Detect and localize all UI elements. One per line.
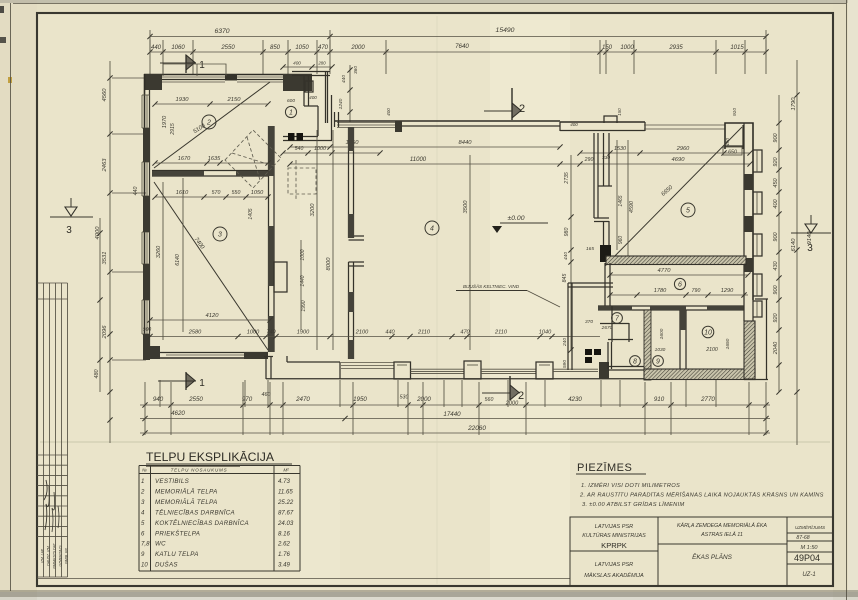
svg-text:1990: 1990 (301, 300, 307, 311)
svg-text:360: 360 (353, 66, 359, 74)
svg-text:790: 790 (692, 288, 701, 294)
svg-text:900: 900 (773, 231, 779, 241)
svg-text:2960: 2960 (676, 146, 690, 152)
svg-text:400: 400 (386, 108, 391, 116)
svg-text:2735: 2735 (564, 172, 570, 185)
svg-text:MEMORIĀLĀ TELPA: MEMORIĀLĀ TELPA (155, 499, 218, 506)
svg-text:3: 3 (218, 231, 222, 238)
svg-text:PARAKSTS DAT: PARAKSTS DAT (53, 542, 57, 568)
svg-text:980: 980 (564, 228, 570, 237)
svg-text:1: 1 (199, 60, 205, 71)
svg-text:3.49: 3.49 (278, 562, 290, 569)
svg-text:1950: 1950 (353, 396, 367, 403)
svg-text:920: 920 (773, 156, 779, 166)
svg-text:480: 480 (94, 370, 100, 379)
svg-text:PARB. KR: PARB. KR (65, 548, 69, 564)
svg-text:UZ-1: UZ-1 (802, 572, 815, 578)
svg-text:1060: 1060 (171, 45, 185, 51)
svg-text:1405: 1405 (248, 208, 254, 219)
svg-text:1050: 1050 (251, 190, 264, 196)
svg-text:1635: 1635 (208, 156, 221, 162)
svg-text:280: 280 (317, 61, 326, 66)
svg-text:8: 8 (633, 358, 637, 365)
svg-text:TELPU NOSAUKUMS: TELPU NOSAUKUMS (171, 468, 228, 473)
svg-text:400: 400 (309, 95, 317, 100)
svg-text:№: № (142, 468, 147, 473)
svg-text:1050: 1050 (295, 45, 309, 51)
svg-text:440: 440 (133, 187, 139, 196)
svg-text:KOKTĒLNIECĪBAS DARBNĪCA: KOKTĒLNIECĪBAS DARBNĪCA (155, 520, 249, 527)
svg-text:8000: 8000 (326, 257, 332, 271)
svg-text:550: 550 (232, 190, 241, 196)
svg-text:460: 460 (262, 392, 271, 398)
svg-text:1790: 1790 (791, 97, 797, 111)
svg-text:2100: 2100 (355, 330, 369, 336)
svg-text:KATLU TELPA: KATLU TELPA (155, 551, 199, 558)
svg-text:9: 9 (656, 358, 660, 365)
svg-text:2150: 2150 (227, 97, 242, 103)
svg-text:570: 570 (212, 190, 221, 196)
svg-text:11.65: 11.65 (278, 488, 293, 495)
svg-text:2580: 2580 (188, 330, 202, 336)
svg-text:2096: 2096 (102, 325, 108, 340)
svg-text:910: 910 (732, 108, 738, 116)
svg-text:1015: 1015 (730, 45, 744, 51)
svg-text:1610: 1610 (176, 190, 189, 196)
svg-text:1.76: 1.76 (278, 551, 290, 558)
svg-text:1670: 1670 (178, 156, 191, 162)
svg-text:2550: 2550 (220, 45, 235, 51)
svg-text:1780: 1780 (654, 288, 667, 294)
svg-text:4560: 4560 (102, 88, 108, 102)
svg-text:470: 470 (460, 330, 470, 336)
svg-text:6370: 6370 (214, 28, 229, 35)
svg-text:3. ±0.00 ATBILST GRĪDAS LĪMENI: 3. ±0.00 ATBILST GRĪDAS LĪMENIM (582, 501, 685, 508)
svg-text:VESTIBILS: VESTIBILS (155, 478, 190, 485)
svg-text:TĒLNIECĪBAS DARBNĪCA: TĒLNIECĪBAS DARBNĪCA (155, 509, 235, 516)
svg-text:87.67: 87.67 (278, 509, 294, 516)
svg-text:4.73: 4.73 (278, 478, 290, 485)
svg-text:2110: 2110 (494, 330, 508, 336)
svg-text:DUŠAS: DUŠAS (155, 562, 178, 569)
svg-text:5: 5 (686, 207, 690, 214)
svg-text:650: 650 (728, 150, 737, 156)
svg-text:3531: 3531 (102, 252, 108, 265)
svg-text:440: 440 (341, 75, 347, 83)
svg-text:1970: 1970 (162, 115, 168, 128)
svg-text:2770: 2770 (700, 396, 715, 403)
svg-text:MĀKSLAS AKADĒMIJA: MĀKSLAS AKADĒMIJA (584, 572, 644, 579)
svg-text:560: 560 (485, 397, 494, 403)
svg-text:49P04: 49P04 (794, 553, 820, 563)
svg-text:7640: 7640 (455, 43, 469, 50)
svg-text:KPRPK: KPRPK (601, 541, 627, 550)
svg-text:17440: 17440 (443, 411, 461, 418)
svg-text:740: 740 (266, 330, 276, 336)
svg-text:430: 430 (773, 260, 779, 270)
svg-text:PIEZĪMES: PIEZĪMES (577, 462, 632, 474)
svg-text:920: 920 (773, 312, 779, 322)
svg-text:400: 400 (773, 198, 779, 208)
svg-text:150: 150 (617, 108, 622, 116)
svg-text:UZMERITAJS: UZMERITAJS (59, 545, 63, 567)
svg-text:1000: 1000 (620, 45, 634, 51)
svg-text:910: 910 (654, 396, 665, 403)
svg-text:11000: 11000 (410, 157, 427, 163)
svg-text:1040: 1040 (539, 330, 552, 336)
svg-text:1: 1 (199, 378, 205, 389)
svg-text:850: 850 (270, 45, 281, 51)
svg-text:900: 900 (773, 132, 779, 142)
svg-text:440: 440 (563, 252, 569, 260)
svg-text:2470: 2470 (295, 396, 310, 403)
svg-text:4620: 4620 (171, 410, 185, 417)
svg-text:ASTRAS IELĀ 11: ASTRAS IELĀ 11 (700, 531, 743, 538)
svg-text:3260: 3260 (156, 245, 162, 258)
svg-text:MEMORIĀLĀ TELPA: MEMORIĀLĀ TELPA (155, 488, 218, 495)
svg-text:2670: 2670 (601, 325, 613, 331)
svg-text:WC: WC (155, 541, 166, 548)
svg-text:M²: M² (283, 468, 289, 473)
svg-text:22060: 22060 (467, 425, 486, 432)
svg-text:165: 165 (586, 246, 594, 252)
svg-text:KĀRĻA ZEMDEGA MEMORIĀLĀ ĒKA: KĀRĻA ZEMDEGA MEMORIĀLĀ ĒKA (677, 522, 767, 529)
svg-text:845: 845 (562, 274, 568, 283)
svg-text:2. AR RAUSTĪTU PARĀDĪTAS MĒRĪŠ: 2. AR RAUSTĪTU PARĀDĪTAS MĒRĪŠANAS LAIKĀ… (579, 492, 824, 499)
svg-text:2: 2 (140, 488, 145, 495)
svg-text:LATVIJAS PSR: LATVIJAS PSR (595, 524, 633, 530)
svg-text:4120: 4120 (206, 313, 220, 319)
svg-text:2: 2 (519, 103, 525, 115)
svg-text:600: 600 (287, 98, 295, 104)
svg-text:DAUDZ. IZM: DAUDZ. IZM (47, 546, 51, 566)
svg-text:4000: 4000 (95, 226, 101, 240)
svg-text:4770: 4770 (658, 268, 672, 274)
svg-text:900: 900 (143, 327, 152, 333)
svg-text:1030: 1030 (655, 347, 666, 353)
svg-text:960: 960 (618, 236, 624, 245)
svg-text:87-68: 87-68 (796, 535, 809, 541)
svg-text:UZMĒRĪJUMS: UZMĒRĪJUMS (795, 524, 826, 530)
svg-text:PRIEKŠTELPA: PRIEKŠTELPA (155, 530, 200, 537)
svg-text:1000: 1000 (300, 249, 306, 260)
svg-text:590: 590 (562, 360, 568, 368)
svg-text:2: 2 (518, 390, 524, 402)
svg-text:2000: 2000 (350, 45, 365, 51)
svg-text:2: 2 (206, 119, 211, 126)
svg-text:900: 900 (773, 284, 779, 294)
svg-text:240: 240 (562, 338, 568, 347)
svg-text:1: 1 (141, 478, 144, 485)
svg-text:3500: 3500 (463, 200, 469, 214)
svg-text:15490: 15490 (496, 27, 515, 34)
svg-text:4230: 4230 (568, 396, 582, 403)
svg-text:4: 4 (430, 225, 434, 232)
svg-text:450: 450 (773, 177, 779, 187)
svg-text:IZM. LAP: IZM. LAP (41, 548, 45, 563)
svg-text:10: 10 (704, 329, 712, 336)
svg-text:2000: 2000 (416, 396, 431, 403)
svg-text:290: 290 (584, 157, 594, 163)
svg-text:1465: 1465 (618, 195, 624, 206)
svg-text:370: 370 (585, 319, 593, 325)
svg-text:6: 6 (678, 281, 682, 288)
svg-text:4590: 4590 (629, 201, 635, 213)
svg-text:530: 530 (400, 395, 409, 401)
svg-text:2550: 2550 (188, 396, 203, 403)
svg-text:440: 440 (385, 330, 395, 336)
svg-text:25.22: 25.22 (277, 499, 294, 506)
svg-text:2915: 2915 (170, 123, 176, 136)
svg-text:±0.00: ±0.00 (508, 215, 525, 222)
svg-text:M 1:50: M 1:50 (800, 545, 818, 551)
svg-text:2110: 2110 (417, 330, 431, 336)
svg-text:490: 490 (725, 138, 731, 146)
svg-text:1440: 1440 (300, 275, 306, 286)
svg-text:2463: 2463 (102, 158, 108, 173)
svg-text:2.62: 2.62 (277, 541, 290, 548)
svg-text:440: 440 (151, 45, 162, 51)
svg-text:1: 1 (289, 109, 293, 116)
svg-text:10: 10 (141, 562, 148, 569)
svg-text:8.16: 8.16 (278, 530, 290, 537)
svg-text:3200: 3200 (310, 203, 316, 217)
svg-text:1930: 1930 (176, 97, 190, 103)
svg-text:1900: 1900 (297, 330, 310, 336)
svg-text:ĒKAS PLĀNS: ĒKAS PLĀNS (692, 553, 733, 561)
svg-text:3: 3 (807, 243, 813, 254)
svg-text:BIJUŠĀS KELTNIEC. VIND: BIJUŠĀS KELTNIEC. VIND (463, 283, 520, 289)
svg-text:1240: 1240 (338, 98, 344, 109)
svg-text:970: 970 (242, 396, 253, 403)
svg-text:2100: 2100 (705, 347, 718, 353)
svg-text:2040: 2040 (773, 341, 779, 355)
svg-text:1650: 1650 (725, 338, 731, 349)
svg-text:150: 150 (602, 45, 613, 51)
svg-text:400: 400 (293, 61, 301, 66)
svg-text:6140: 6140 (791, 238, 797, 252)
svg-text:7,8: 7,8 (141, 541, 150, 548)
svg-text:6140: 6140 (175, 254, 181, 266)
svg-text:3: 3 (66, 225, 72, 236)
svg-text:1290: 1290 (721, 288, 734, 294)
svg-text:8440: 8440 (459, 140, 473, 146)
svg-text:1. IZMĒRI VISI DOTI MILIMETROS: 1. IZMĒRI VISI DOTI MILIMETROS (581, 482, 680, 489)
svg-text:1600: 1600 (659, 328, 665, 339)
svg-text:940: 940 (153, 396, 164, 403)
svg-text:1530: 1530 (614, 146, 626, 152)
svg-text:TELPU EKSPLIKĀCIJA: TELPU EKSPLIKĀCIJA (146, 450, 275, 464)
svg-text:4690: 4690 (672, 157, 686, 163)
svg-text:KULTŪRAS MINISTRIJAS: KULTŪRAS MINISTRIJAS (582, 532, 646, 539)
svg-text:1000: 1000 (247, 330, 260, 336)
svg-text:LATVIJAS PSR: LATVIJAS PSR (595, 562, 633, 568)
svg-text:2935: 2935 (668, 45, 683, 51)
svg-text:24.03: 24.03 (277, 520, 294, 527)
svg-text:470: 470 (318, 45, 329, 51)
